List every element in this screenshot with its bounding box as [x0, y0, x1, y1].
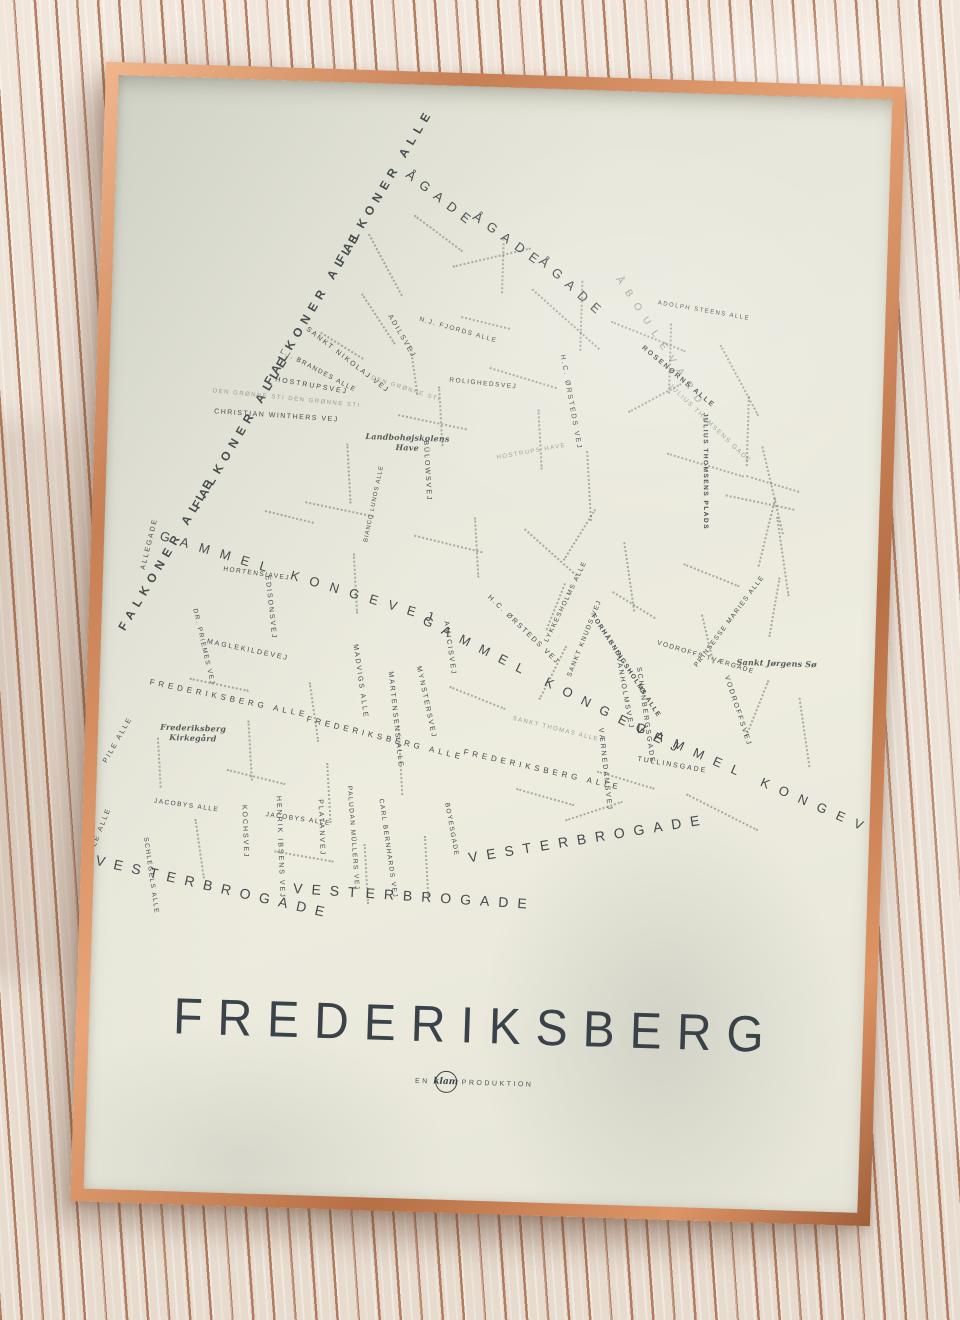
street-dots	[398, 414, 467, 430]
street-label: MADVIGS ALLE	[351, 644, 369, 719]
street-dots	[768, 578, 780, 637]
street-dots	[612, 591, 656, 619]
street-label: DR. PRIEMES VEJ	[191, 608, 215, 686]
street-label: BIANCO LUNOS ALLE	[363, 465, 385, 543]
street-dots	[563, 509, 596, 561]
landmark-label: Frederiksberg Kirkegård	[160, 722, 227, 744]
landmark-label: Landbohøjskolens Have	[365, 431, 450, 454]
street-label: CHRISTIAN WINTHERS VEJ	[214, 408, 339, 423]
street-label: FREDERIKSBERG ALLE	[149, 678, 309, 719]
street-dots	[309, 682, 320, 742]
street-label: JULIUS THOMSENS GADE	[667, 383, 752, 465]
street-label: FREDERIKSBERG ALLE	[306, 715, 465, 761]
street-dots	[501, 238, 505, 293]
street-dots	[761, 446, 783, 534]
street-label: JULIUS THOMSENS PLADS	[701, 413, 708, 530]
street-label: VODROFFSVEJ	[723, 675, 753, 747]
street-dots	[798, 698, 810, 768]
street-label: ÅGADE	[404, 168, 480, 231]
street-dots	[726, 494, 795, 510]
street-label: EDISONSVEJ	[264, 575, 278, 640]
street-dots	[368, 234, 403, 297]
street-dots	[628, 383, 682, 413]
street-label: KOCHSVEJ	[240, 805, 249, 859]
street-label: H.C. ØRSTEDS VEJ	[559, 354, 583, 450]
street-label: VESTERBROGADE	[467, 812, 709, 865]
street-label: ROLIGHEDSVEJ	[449, 378, 518, 391]
klam-logo: klam	[434, 1071, 457, 1094]
street-dots	[461, 316, 510, 330]
street-label: SANKT KNUDS VEJ	[567, 599, 604, 678]
street-dots	[537, 409, 542, 469]
street-dots	[758, 498, 777, 566]
street-dots	[346, 443, 351, 503]
street-dots	[474, 517, 479, 577]
street-label: ADOLPH STEENS ALLE	[657, 300, 750, 322]
street-dots	[449, 686, 505, 710]
street-dots	[453, 247, 531, 267]
street-dots	[326, 763, 331, 823]
street-label: VÆRNEDAMSVEJ	[597, 728, 613, 812]
street-dots	[305, 501, 374, 517]
street-dots	[746, 396, 750, 466]
credit-suffix: PRODUKTION	[462, 1079, 534, 1088]
street-label: SANKT THOMAS ALLE	[512, 716, 600, 743]
street-label: LYKKESHOLMS ALLE	[544, 560, 589, 643]
street-dots	[683, 563, 739, 587]
street-dots	[720, 345, 760, 416]
street-label: PILE ALLE	[102, 716, 134, 764]
street-dots	[194, 819, 205, 879]
street-label: JACOBYS ALLE	[153, 799, 219, 814]
street-dots	[157, 738, 162, 788]
street-label: HENRIK IBSENS VEJ	[275, 796, 286, 899]
frederiksberg-map-poster: ÅGADEÅGADEÅGADEÅBOULEVARDFALKONER ALLEFA…	[84, 75, 893, 1213]
street-label: CARL BERNHARDS VEJ	[377, 798, 398, 898]
street-dots	[247, 720, 252, 780]
street-dots	[265, 510, 314, 524]
street-dots	[516, 788, 574, 806]
street-label: BOYESGADE	[443, 802, 459, 857]
street-label: HOSTRUPS HAVE	[496, 443, 566, 461]
street-label: PALUDAN MÜLLERS VEJ	[345, 786, 359, 891]
copper-poster-frame: ÅGADEÅGADEÅGADEÅBOULEVARDFALKONER ALLEFA…	[70, 62, 905, 1227]
street-label: PLATANVEJ	[317, 799, 326, 856]
street-label: ÅGADE	[471, 210, 548, 271]
street-dots	[745, 680, 769, 736]
street-dots	[353, 554, 358, 614]
street-dots	[414, 535, 482, 554]
street-label: PILE ALLE	[87, 807, 113, 858]
credit-prefix: EN	[415, 1077, 430, 1084]
street-dots	[414, 215, 463, 253]
street-label: MYNSTERSVEJ	[415, 666, 437, 740]
street-dots	[424, 836, 429, 896]
street-label: ÅGADE	[537, 254, 609, 321]
street-dots	[586, 451, 592, 521]
street-label: MAGLEKILDEVEJ	[206, 638, 289, 662]
street-label: GAMMEL KONGEVEJ	[158, 529, 444, 627]
street-dots	[227, 769, 286, 785]
street-label: MARTENSENS ALLE	[387, 671, 404, 768]
